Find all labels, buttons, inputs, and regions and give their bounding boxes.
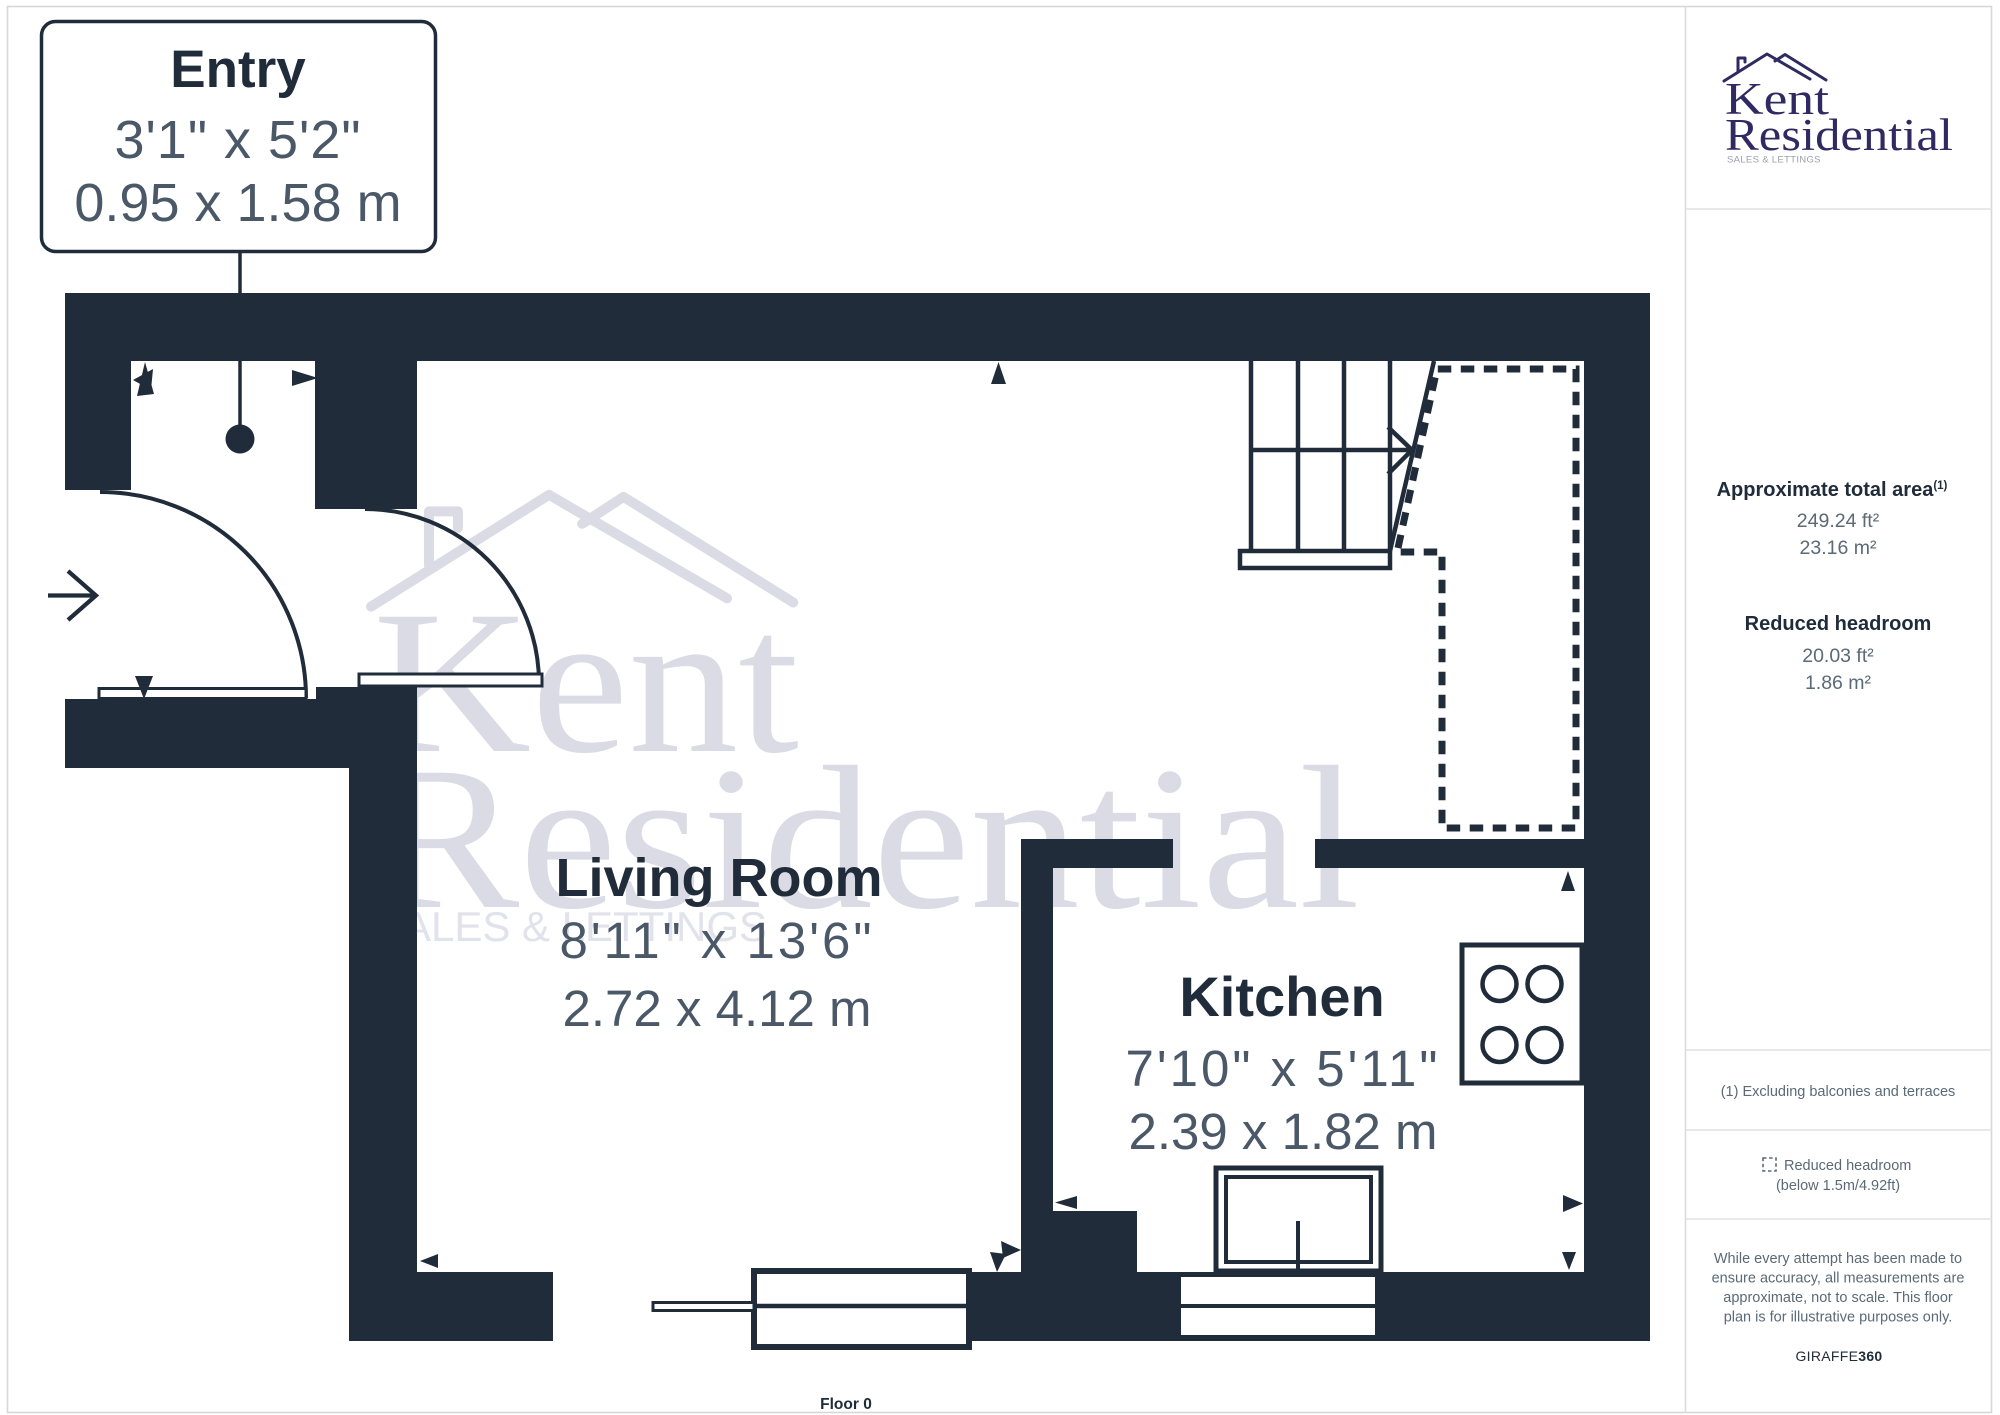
svg-text:SALES & LETTINGS: SALES & LETTINGS [1727, 155, 1822, 166]
svg-text:249.24 ft²: 249.24 ft² [1797, 510, 1880, 532]
svg-text:2.72 x 4.12 m: 2.72 x 4.12 m [562, 980, 871, 1037]
svg-text:3'1" x 5'2": 3'1" x 5'2" [114, 110, 361, 170]
svg-text:2.39 x 1.82 m: 2.39 x 1.82 m [1128, 1103, 1437, 1160]
svg-text:0.95 x 1.58 m: 0.95 x 1.58 m [74, 173, 401, 233]
svg-text:Kitchen: Kitchen [1179, 965, 1384, 1028]
svg-text:(below 1.5m/4.92ft): (below 1.5m/4.92ft) [1776, 1178, 1900, 1194]
svg-text:Entry: Entry [170, 40, 306, 99]
svg-text:Living Room: Living Room [556, 848, 883, 908]
svg-text:23.16 m²: 23.16 m² [1800, 537, 1877, 559]
svg-text:ensure accuracy, all measureme: ensure accuracy, all measurements are [1712, 1271, 1965, 1287]
svg-text:Reduced headroom: Reduced headroom [1784, 1158, 1911, 1174]
svg-text:While every attempt has been m: While every attempt has been made to [1714, 1251, 1962, 1267]
svg-text:7'10" x 5'11": 7'10" x 5'11" [1126, 1040, 1441, 1097]
svg-text:Residential: Residential [1725, 110, 1953, 160]
svg-text:plan is for illustrative purpo: plan is for illustrative purposes only. [1724, 1310, 1953, 1326]
svg-text:GIRAFFE360: GIRAFFE360 [1795, 1348, 1882, 1364]
svg-text:Approximate total area(1): Approximate total area(1) [1717, 479, 1948, 501]
svg-text:approximate, not to scale. Thi: approximate, not to scale. This floor [1723, 1290, 1953, 1306]
svg-text:Reduced headroom: Reduced headroom [1745, 613, 1932, 635]
svg-text:1.86 m²: 1.86 m² [1805, 672, 1872, 694]
svg-text:8'11" x 13'6": 8'11" x 13'6" [560, 912, 875, 969]
svg-text:Floor 0: Floor 0 [820, 1396, 872, 1413]
svg-text:20.03 ft²: 20.03 ft² [1802, 645, 1874, 667]
svg-text:(1) Excluding balconies and te: (1) Excluding balconies and terraces [1721, 1084, 1956, 1100]
